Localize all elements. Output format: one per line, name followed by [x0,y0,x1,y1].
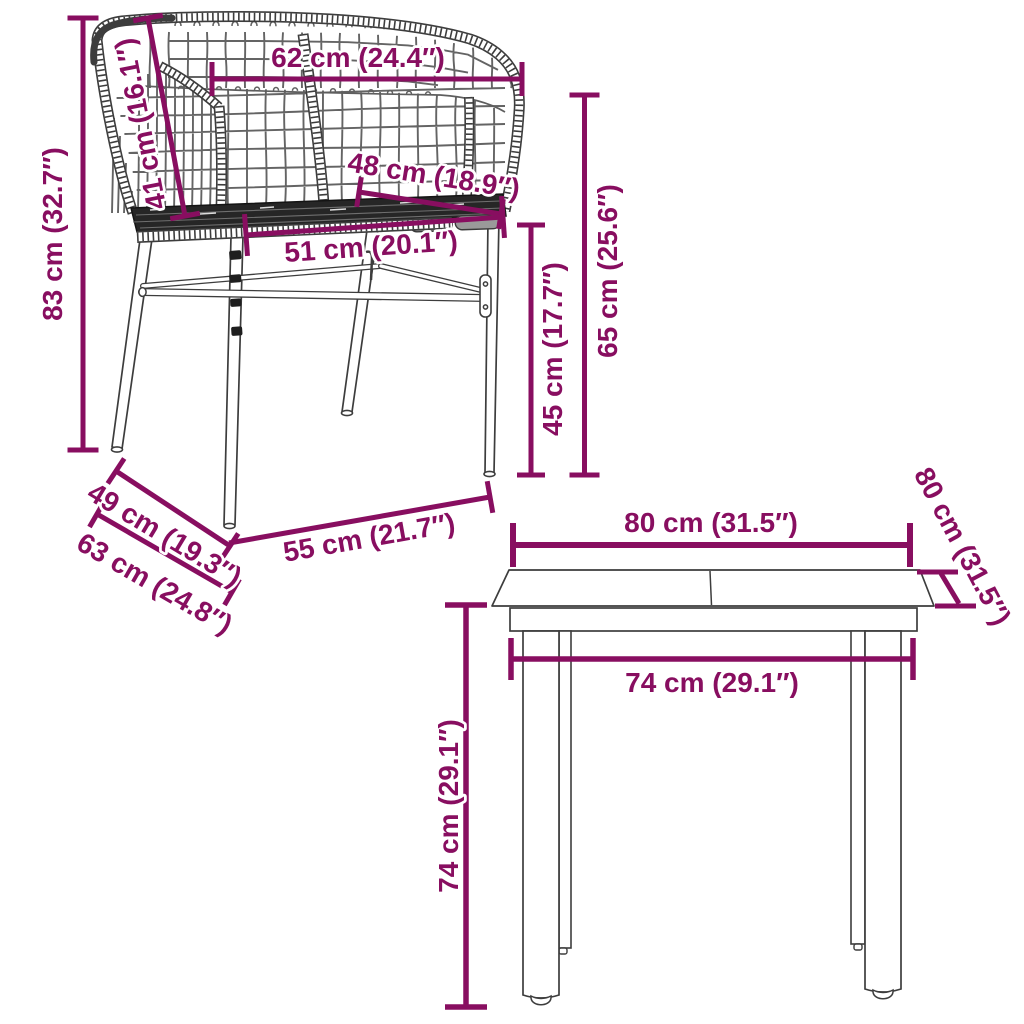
svg-text:65 cm (25.6″): 65 cm (25.6″) [592,184,623,358]
svg-text:74 cm (29.1″): 74 cm (29.1″) [625,667,799,698]
svg-text:74 cm (29.1″): 74 cm (29.1″) [433,719,464,893]
svg-text:45 cm (17.7″): 45 cm (17.7″) [537,262,568,436]
svg-text:62 cm (24.4″): 62 cm (24.4″) [271,42,445,73]
svg-text:83 cm (32.7″): 83 cm (32.7″) [37,147,68,321]
svg-text:80 cm (31.5″): 80 cm (31.5″) [624,507,798,538]
